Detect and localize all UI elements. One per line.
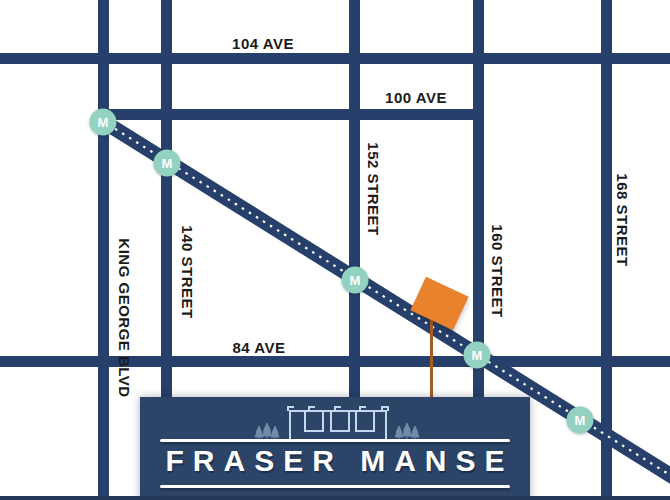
skytrain-station-icon: M — [154, 150, 181, 177]
location-map: 104 AVE 100 AVE 84 AVE KING GEORGE BLVD … — [0, 0, 670, 500]
building-illustration-icon — [248, 402, 424, 444]
skytrain-station-icon: M — [90, 109, 117, 136]
bottom-edge-road — [0, 496, 670, 500]
property-marker-pole — [430, 315, 433, 399]
banner-divider-bottom — [160, 485, 510, 488]
project-title: FRASER MANSE — [140, 444, 530, 478]
skytrain-station-icon: M — [464, 342, 491, 369]
skytrain-station-icon: M — [567, 407, 594, 434]
pine-trees-icon — [255, 423, 279, 440]
project-banner: FRASER MANSE — [140, 397, 530, 500]
pine-trees-icon — [395, 423, 419, 440]
building-roofline — [288, 407, 388, 440]
skytrain-station-icon: M — [342, 267, 369, 294]
banner-divider-top — [160, 439, 510, 442]
